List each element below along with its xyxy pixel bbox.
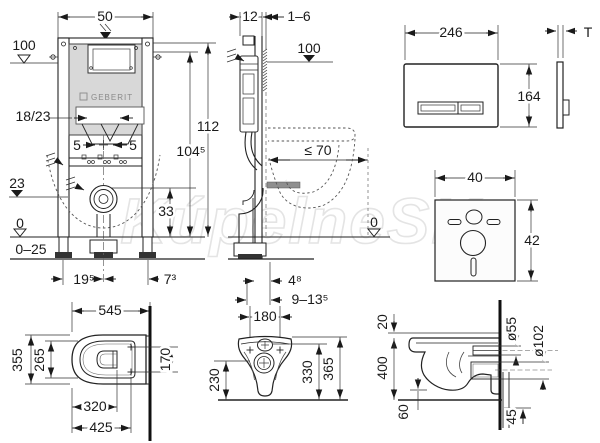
dim-wc-front-label: 320	[83, 398, 107, 414]
dim-level-100-label: 100	[12, 37, 36, 53]
wc-side-view: 20 400 60 45 ø55 ø102	[374, 300, 558, 430]
wc-front-view: 180 230	[206, 306, 348, 400]
dim-bolt-right-label: 7³	[164, 271, 177, 287]
level-marker-filled	[11, 190, 23, 197]
dim-drain-height-label: 230	[206, 368, 222, 392]
dim-hole-spacing-label: 170	[157, 348, 173, 372]
level-marker-filled	[303, 55, 315, 62]
dim-bottom-front-label: 60	[395, 404, 411, 420]
dim-flush-diameter-label: ø55	[503, 317, 519, 341]
dim-height-inner-label: 104⁵	[176, 143, 205, 159]
dim-bolt-left-label: 19⁵	[73, 271, 94, 287]
dim-flush-height-label: 330	[299, 360, 315, 384]
dim-wall-height-label: 400	[374, 356, 390, 380]
dim-rail-depth-label: 12	[242, 8, 258, 24]
dim-wc-width-label: 355	[9, 348, 25, 372]
dim-hole-width-label: 180	[253, 308, 277, 324]
dim-below-floor-label: 45	[503, 409, 519, 425]
flush-plate-view: 246 164 T	[404, 24, 593, 128]
dim-plate-thickness-label: T	[584, 24, 593, 40]
watermark-text: KúpelneSK	[120, 185, 482, 257]
install-frame-side-view: 12 1–6	[227, 8, 390, 307]
dim-wc-body-label: 425	[89, 419, 113, 435]
dim-level-23-label: 23	[9, 175, 25, 191]
dim-level-0-label: 0	[370, 214, 378, 230]
wc-bowl-side	[409, 338, 500, 394]
dim-floor-range-label: 0–25	[15, 241, 46, 257]
dim-supply-label: 18/23	[15, 108, 50, 124]
dim-mat-width-label: 40	[467, 169, 483, 185]
dim-drain-diameter-label: ø102	[530, 325, 546, 357]
plate-side-profile	[545, 25, 577, 128]
dim-wc-inner-label: 265	[31, 348, 47, 372]
wc-top-view: 545 355 265	[9, 302, 178, 441]
dim-top-gap-label: 20	[374, 314, 390, 330]
dim-wall-gap-label: 4⁸	[288, 272, 302, 288]
dim-wall-range-label: 9–13⁵	[292, 291, 329, 307]
dim-plate-width-label: 246	[439, 24, 463, 40]
dim-mat-height-label: 42	[524, 232, 540, 248]
dim-bowl-depth-label: ≤ 70	[304, 142, 331, 158]
dimension-lines	[235, 262, 282, 305]
flush-buttons	[418, 102, 483, 114]
wc-bowl-front	[238, 337, 291, 397]
technical-drawing: KúpelneSK 50	[0, 0, 600, 443]
dim-height-total-label: 112	[197, 118, 220, 134]
dim-offset-right-label: 5	[129, 137, 137, 153]
dim-frame-width-label: 50	[97, 8, 113, 24]
level-marker-open	[18, 55, 30, 63]
dim-outlet-height-label: 33	[158, 203, 174, 219]
dim-wc-depth-label: 545	[98, 302, 122, 318]
flush-plate-face	[404, 64, 498, 127]
brand-label: GEBERIT	[91, 93, 133, 102]
drawing-canvas: KúpelneSK 50	[0, 0, 600, 443]
mat-body	[435, 200, 515, 281]
wc-bowl-top	[72, 335, 146, 384]
dim-level-100-label: 100	[297, 40, 321, 56]
dim-finish-range-label: 1–6	[287, 8, 311, 24]
dim-plate-height-label: 164	[517, 88, 541, 104]
level-marker-open	[14, 229, 26, 237]
flush-pipe-bar	[267, 182, 300, 188]
dim-offset-left-label: 5	[73, 137, 81, 153]
dim-total-height-label: 365	[320, 357, 336, 381]
